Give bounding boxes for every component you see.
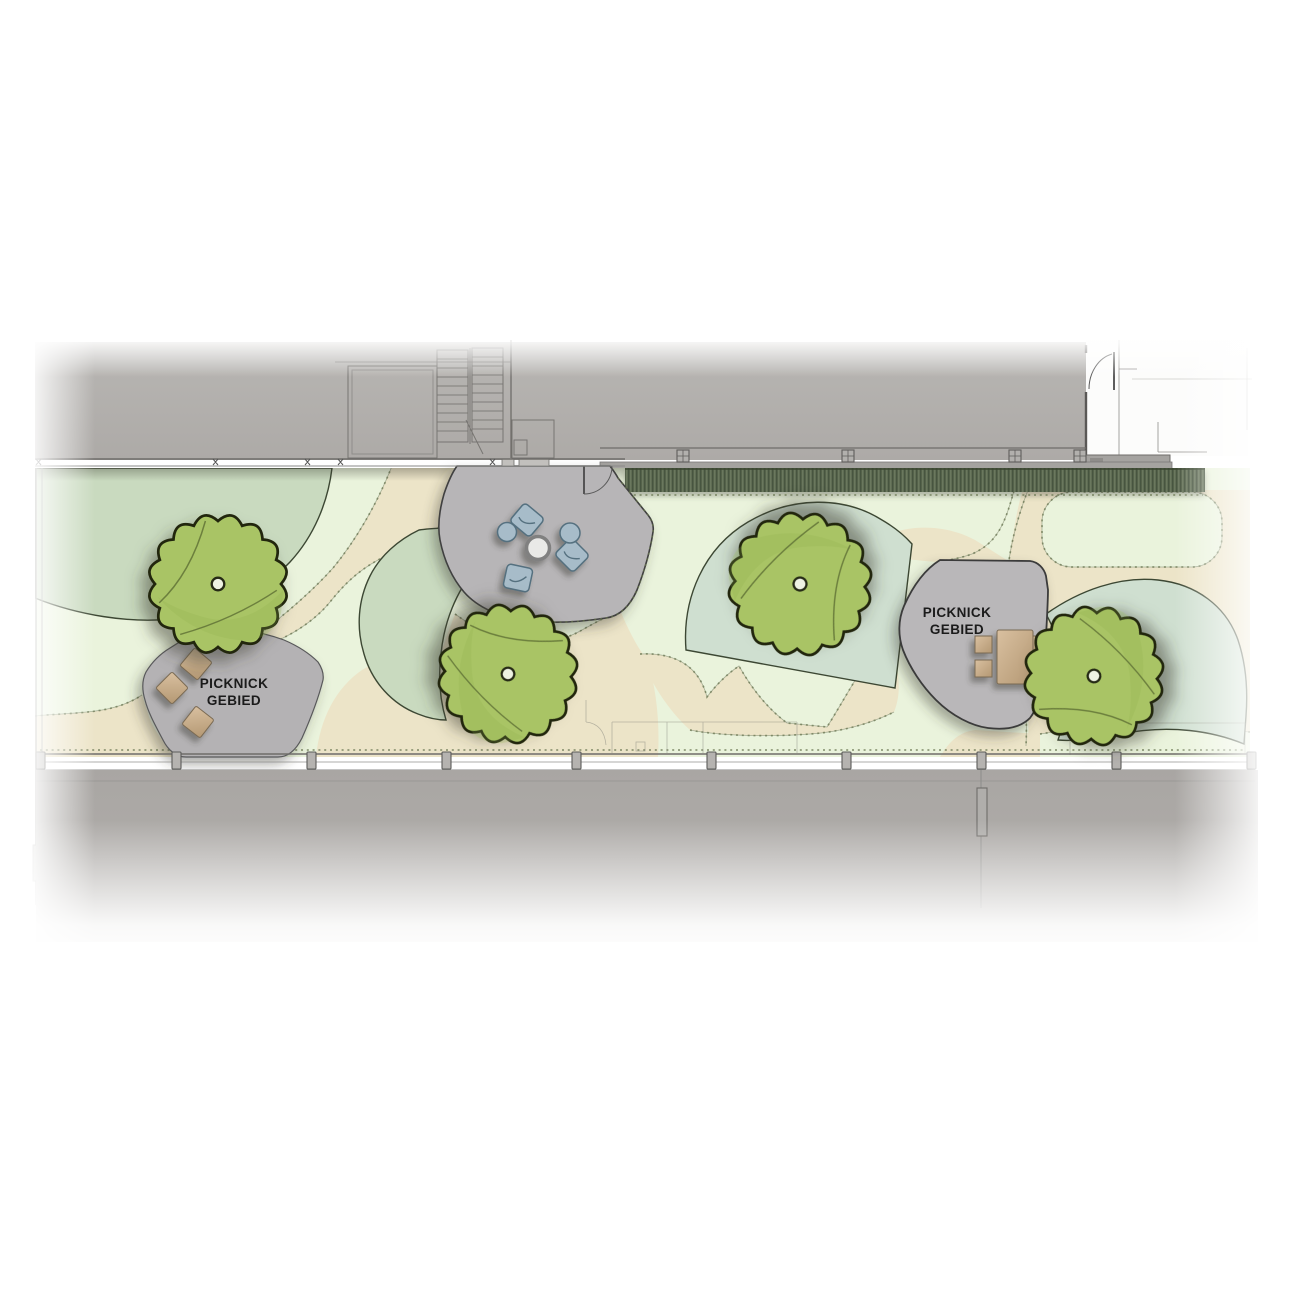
building-north-footprint	[35, 342, 1086, 460]
round-table	[527, 537, 550, 560]
lounge-pouf	[503, 564, 533, 593]
site-plan-drawing: PICKNICK GEBIED PICKNICK GEBIED	[0, 0, 1299, 1299]
round-pouf	[560, 523, 580, 543]
picnic-bench	[975, 660, 992, 677]
picnic-east-label-line1: PICKNICK	[923, 605, 991, 620]
picnic-west-label-line1: PICKNICK	[200, 676, 268, 691]
building-north	[35, 340, 1252, 471]
margin-bottom	[0, 955, 1299, 1299]
lawn-patch-east	[1042, 492, 1222, 567]
picnic-bench	[975, 636, 992, 653]
picnic-east-label-line2: GEBIED	[930, 622, 984, 637]
terrace-surface	[36, 770, 1258, 942]
picnic-west-label-line2: GEBIED	[207, 693, 261, 708]
margin-top	[0, 0, 1299, 318]
hedge	[625, 468, 1205, 492]
plaza-central	[439, 459, 653, 622]
site-plan-page: PICKNICK GEBIED PICKNICK GEBIED	[0, 0, 1299, 1299]
building-interior-room	[1086, 340, 1248, 456]
terrace-post	[977, 788, 987, 836]
round-pouf	[498, 523, 517, 542]
terrace-south	[36, 770, 1258, 942]
